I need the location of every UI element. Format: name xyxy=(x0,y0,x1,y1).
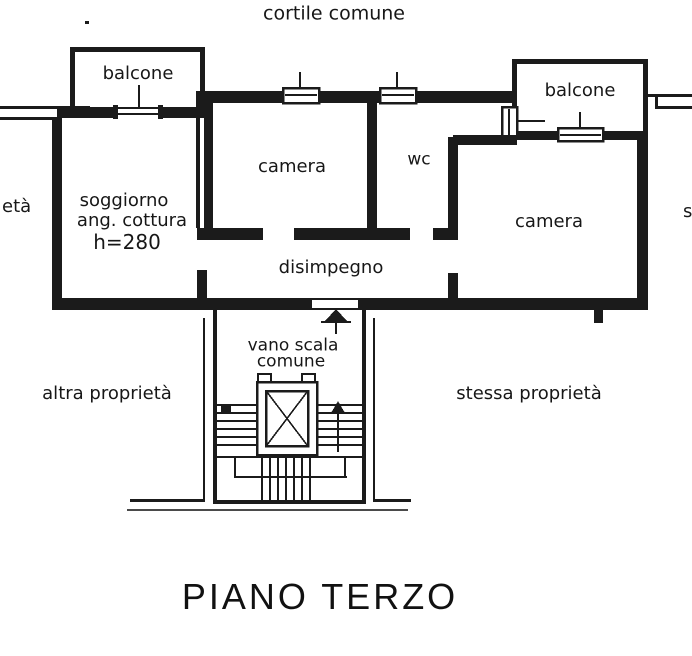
label-left-edge-cut: età xyxy=(2,198,31,216)
entrance-arrow-icon xyxy=(321,309,351,334)
label-courtyard: cortile comune xyxy=(263,5,405,24)
label-wc: wc xyxy=(407,152,430,169)
label-living-1: soggiorno xyxy=(80,192,169,210)
window-wc xyxy=(380,72,416,103)
label-stairwell-2: comune xyxy=(257,354,325,371)
label-balcony-left: balcone xyxy=(103,65,174,83)
label-living-2: ang. cottura xyxy=(77,212,187,230)
label-bedroom-top: camera xyxy=(258,158,326,176)
label-bedroom-right: camera xyxy=(515,213,583,231)
floor-title: PIANO TERZO xyxy=(182,579,458,615)
window-camera-top xyxy=(283,72,319,103)
floor-plan: cortile comune balcone balcone camera wc… xyxy=(0,0,692,656)
elevator-shaft xyxy=(257,374,317,455)
label-right-edge-cut: s xyxy=(683,203,692,221)
label-other-property: altra proprietà xyxy=(42,385,172,403)
label-balcony-right: balcone xyxy=(545,82,616,100)
label-same-property: stessa proprietà xyxy=(456,385,601,403)
label-living-height: h=280 xyxy=(93,232,161,252)
window-soggiorno xyxy=(113,85,163,119)
entrance-door xyxy=(312,298,358,310)
ink-speck xyxy=(85,21,89,24)
label-hallway: disimpegno xyxy=(279,259,384,277)
window-camera-right xyxy=(558,112,603,141)
